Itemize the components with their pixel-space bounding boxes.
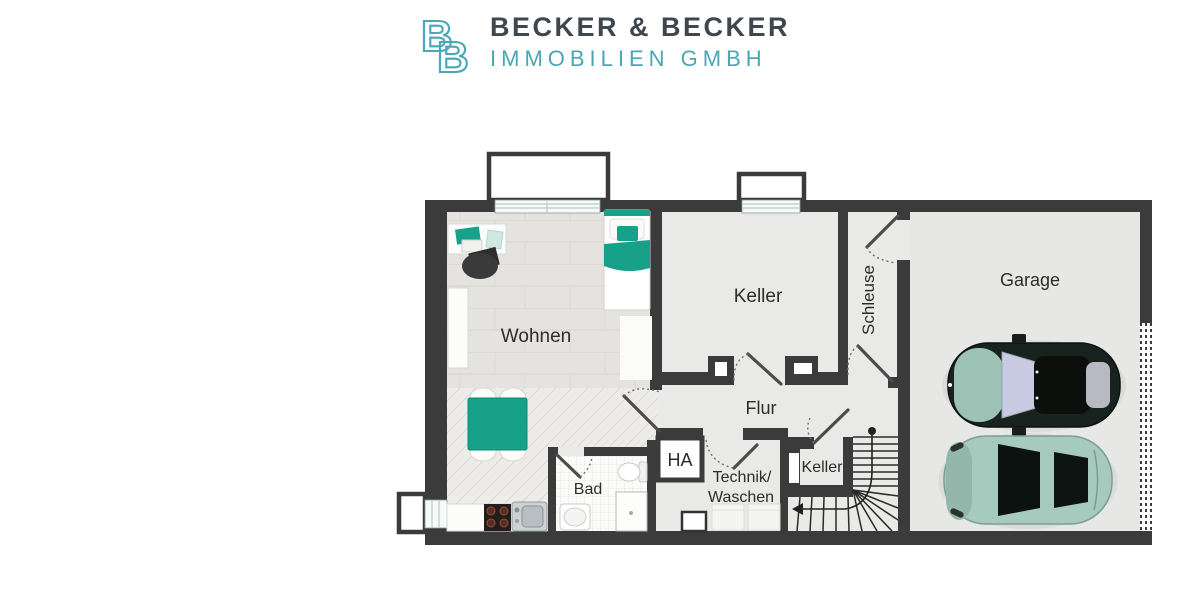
room-label-bad: Bad	[574, 481, 602, 498]
wall-segment	[647, 440, 656, 531]
room-label-technik-line1: Technik/	[713, 469, 772, 486]
technik-box	[682, 512, 706, 531]
wall-segment	[1140, 200, 1152, 323]
bed	[604, 210, 650, 310]
garage-door	[1141, 323, 1151, 531]
wall-segment	[425, 531, 1152, 545]
window-bay-keller	[739, 174, 804, 200]
desk	[448, 224, 506, 254]
dining-set	[468, 388, 527, 461]
room-label-ha: HA	[667, 450, 692, 470]
wall-segment	[898, 385, 910, 531]
page: B B BECKER & BECKER IMMOBILIEN GMBH	[0, 0, 1200, 600]
wall-segment	[548, 447, 556, 531]
sideboard	[448, 288, 468, 368]
kitchen	[447, 502, 547, 531]
wall-segment	[662, 372, 708, 385]
room-label-flur: Flur	[746, 398, 777, 418]
wall-segment	[584, 447, 653, 456]
toilet	[618, 462, 647, 482]
window-keller	[742, 200, 800, 213]
window-wohnen	[495, 200, 600, 213]
wall-niche	[715, 362, 727, 376]
window-kitchen	[425, 500, 447, 528]
room-label-schleuse: Schleuse	[859, 265, 878, 335]
car-sedan	[942, 334, 1126, 436]
car-sports	[938, 433, 1118, 529]
washing-machine	[748, 504, 780, 530]
wall-segment	[780, 437, 788, 531]
keller-small-door	[789, 453, 799, 483]
rug	[620, 316, 652, 380]
room-label-garage: Garage	[1000, 270, 1060, 290]
wall-niche	[794, 363, 812, 374]
wall-segment	[800, 200, 1152, 212]
wall-segment	[838, 212, 848, 385]
floor-plan: Wohnen Keller Schleuse Garage Flur Bad H…	[0, 0, 1200, 600]
window-bay-wohnen	[489, 154, 608, 200]
wall-segment	[425, 212, 447, 500]
room-label-technik-line2: Waschen	[708, 489, 774, 506]
window-bay-kitchen	[399, 494, 425, 532]
stove	[484, 504, 511, 531]
washbasin	[560, 504, 590, 530]
room-label-wohnen: Wohnen	[501, 326, 571, 347]
wall-segment	[425, 200, 495, 212]
wall-segment	[818, 372, 838, 385]
room-label-keller-main: Keller	[734, 286, 783, 307]
shower	[616, 492, 647, 531]
room-label-keller-small: Keller	[802, 459, 844, 476]
wall-segment	[897, 260, 910, 385]
washing-machine	[712, 504, 744, 530]
dining-table	[468, 398, 527, 450]
wall-segment	[788, 485, 853, 497]
kitchen-sink	[512, 502, 547, 531]
